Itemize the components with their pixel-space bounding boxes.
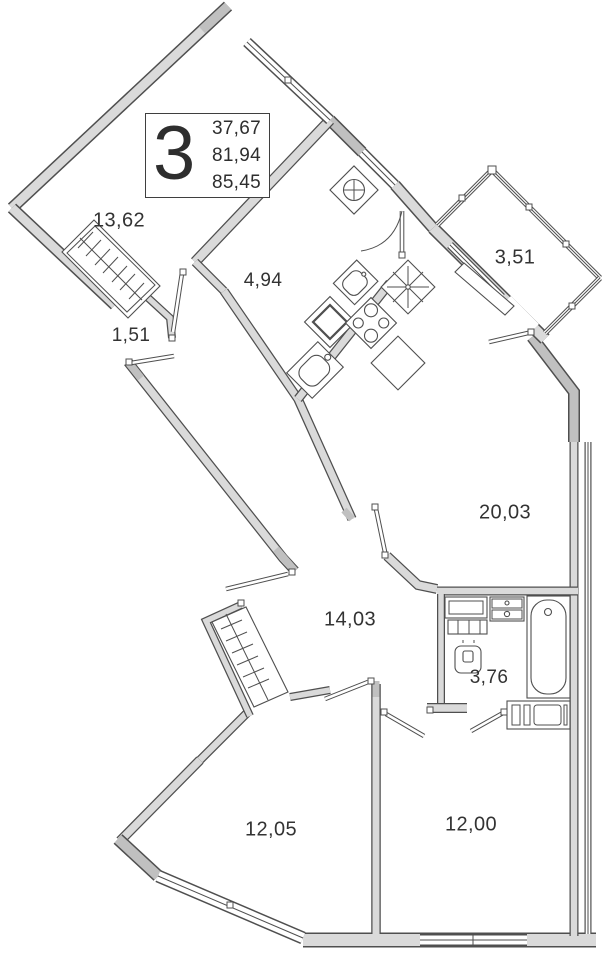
room-area-label-1-51: 1,51	[112, 325, 151, 347]
room-area-label-4-94: 4,94	[244, 270, 283, 292]
stove-icon	[346, 298, 397, 349]
wall-dark-cap	[202, 6, 228, 30]
interior-walls	[120, 120, 578, 934]
room-area-label-13-62: 13,62	[93, 210, 145, 233]
unit-area-main: 81,94	[212, 143, 261, 168]
window-mullion	[227, 902, 233, 908]
glazing-mullion	[459, 195, 465, 201]
wall	[290, 690, 330, 697]
floor-plan-drawing	[0, 0, 609, 956]
room-area-label-3-76: 3,76	[470, 667, 509, 689]
room-area-label-12-00: 12,00	[445, 814, 497, 837]
unit-info-box: 3 37,67 81,94 85,45	[145, 113, 270, 198]
glazing-mullion	[526, 204, 532, 210]
glazing-corner	[488, 166, 496, 174]
unit-area-total: 85,45	[212, 170, 261, 195]
glazing-mullion	[563, 241, 569, 247]
vent-star-icon	[387, 266, 429, 308]
towel-dryer-icon	[448, 620, 487, 634]
shaft-cabinet-icon	[507, 701, 570, 729]
living-room-door	[372, 504, 388, 558]
balcony-door	[489, 329, 534, 342]
unit-areas: 37,67 81,94 85,45	[195, 116, 269, 195]
glazing-mullion	[569, 303, 575, 309]
room-area-label-14-03: 14,03	[324, 609, 376, 632]
bedroom-door	[381, 709, 424, 736]
room-area-label-3-51: 3,51	[495, 247, 536, 270]
room-area-label-12-05: 12,05	[245, 819, 297, 842]
corridor-door	[226, 569, 295, 589]
wall	[120, 760, 200, 841]
wall	[200, 711, 249, 760]
wall-dark-cap	[118, 839, 158, 876]
room-door	[169, 269, 186, 341]
window-mullion	[285, 77, 291, 83]
counter-icon	[371, 336, 425, 390]
washing-machine-icon	[330, 166, 378, 214]
basin-cabinet-icon	[490, 597, 524, 621]
bedroom-door	[325, 678, 374, 699]
wardrobe-icon	[206, 600, 288, 716]
wall	[387, 556, 437, 589]
vanity-icon	[445, 597, 487, 618]
floor-plan-page: 13,62 1,51 4,94 3,51 20,03 14,03 3,76 12…	[0, 0, 609, 956]
wall	[128, 362, 295, 571]
unit-rooms-count: 3	[146, 116, 195, 192]
bathroom-door	[361, 211, 405, 258]
entrance-door	[126, 356, 174, 365]
room-area-label-20-03: 20,03	[479, 502, 531, 525]
unit-area-living: 37,67	[212, 116, 261, 141]
bathtub-icon	[527, 596, 570, 698]
wall	[195, 262, 224, 291]
wall-dark-cap	[330, 120, 362, 152]
